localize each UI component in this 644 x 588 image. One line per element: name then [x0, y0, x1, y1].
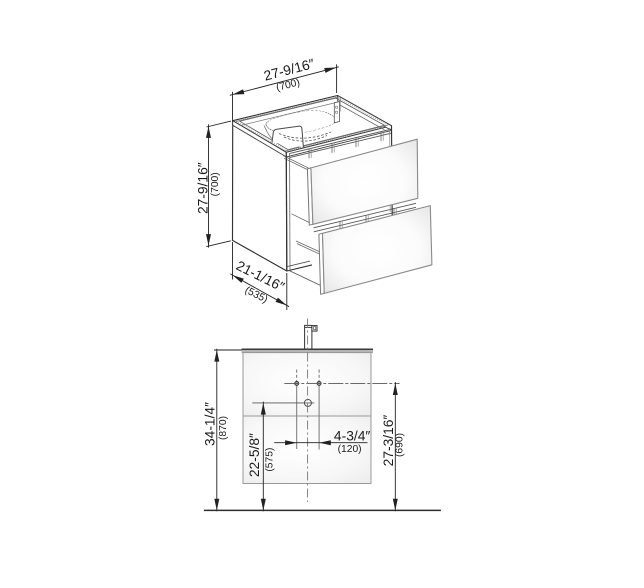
svg-text:(575): (575): [264, 448, 275, 472]
svg-text:4-3/4″: 4-3/4″: [334, 428, 370, 443]
svg-text:34-1/4″: 34-1/4″: [202, 402, 217, 446]
svg-text:22-5/8″: 22-5/8″: [247, 433, 262, 477]
svg-text:(690): (690): [394, 433, 405, 457]
svg-text:27-9/16″: 27-9/16″: [196, 162, 211, 214]
svg-text:(700): (700): [210, 172, 221, 196]
svg-text:(870): (870): [218, 416, 229, 440]
svg-text:(120): (120): [338, 444, 362, 455]
